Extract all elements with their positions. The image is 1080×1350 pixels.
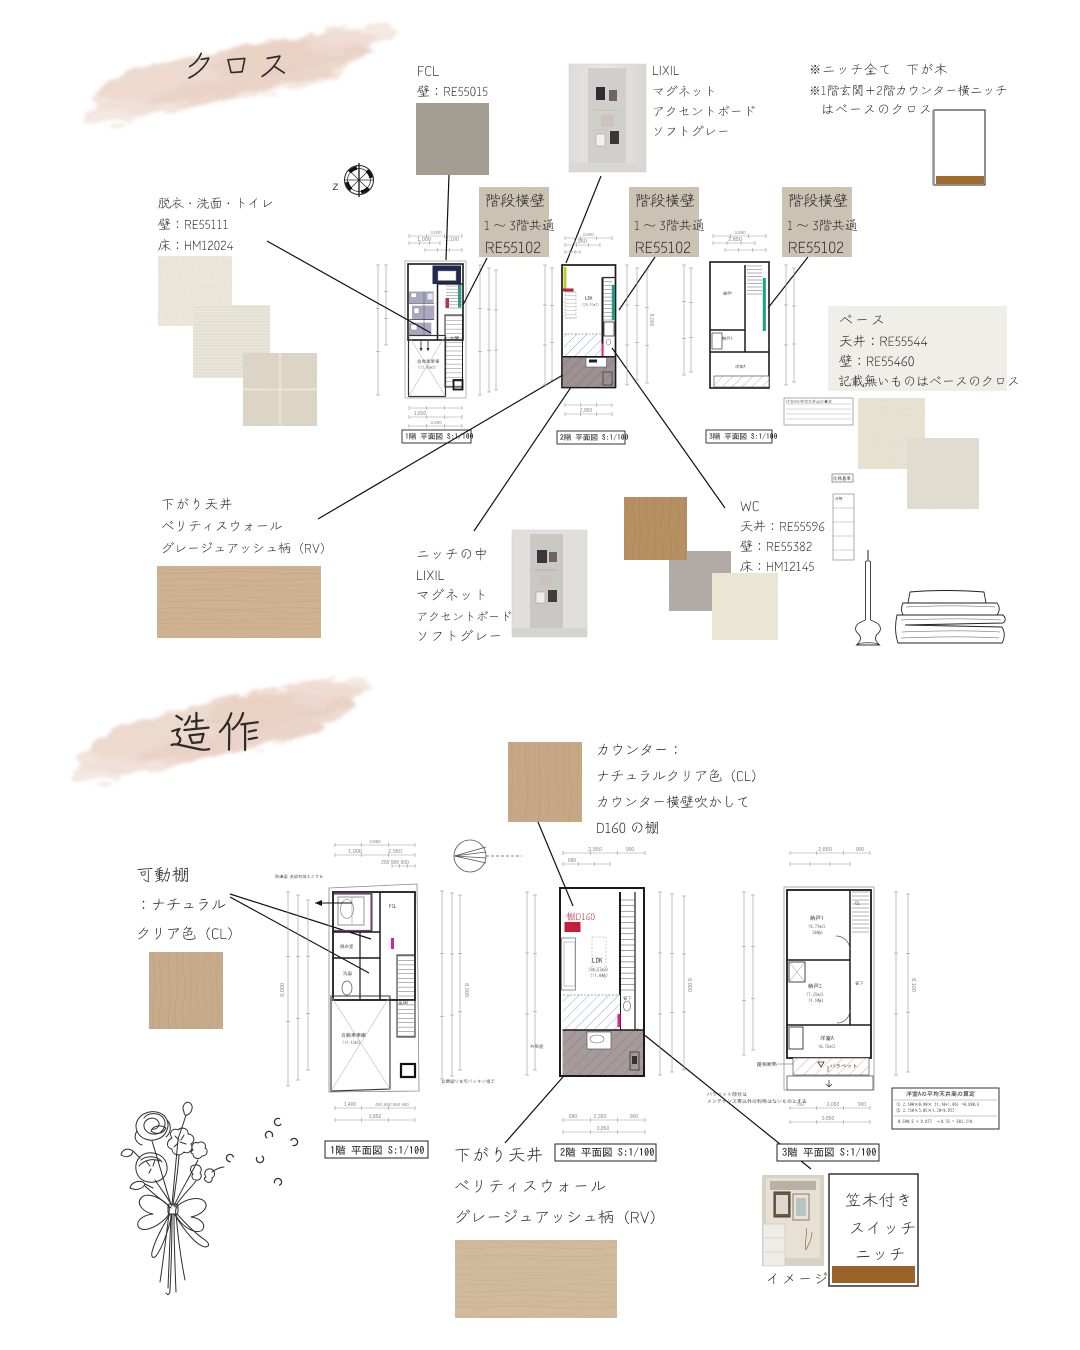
- svg-text:900: 900: [858, 1102, 867, 1108]
- svg-text:900: 900: [856, 847, 865, 853]
- svg-text:2,850: 2,850: [818, 847, 832, 853]
- svg-text:3,850: 3,850: [597, 1126, 610, 1132]
- svg-text:3,850: 3,850: [369, 839, 381, 844]
- svg-text:450 650 550 680: 450 650 550 680: [375, 1102, 409, 1107]
- svg-text:3,850: 3,850: [822, 1116, 835, 1122]
- svg-text:3,000: 3,000: [430, 230, 442, 235]
- svg-text:8,000: 8,000: [686, 978, 692, 992]
- svg-text:8,000: 8,000: [463, 983, 469, 997]
- svg-text:2,350: 2,350: [594, 1114, 607, 1120]
- svg-text:2,050: 2,050: [827, 1102, 840, 1108]
- svg-text:2,050: 2,050: [388, 849, 402, 855]
- svg-text:1,000: 1,000: [348, 849, 362, 855]
- svg-text:680: 680: [569, 1114, 578, 1120]
- svg-text:3,850: 3,850: [734, 230, 746, 235]
- svg-text:3,000: 3,000: [582, 232, 594, 237]
- svg-text:3,850: 3,850: [369, 1114, 382, 1120]
- svg-text:1,400: 1,400: [344, 1102, 357, 1108]
- svg-text:2,950: 2,950: [580, 408, 593, 414]
- svg-text:250 900 900: 250 900 900: [381, 860, 409, 866]
- svg-text:750: 750: [796, 1102, 805, 1108]
- svg-text:2,950: 2,950: [588, 847, 602, 853]
- svg-text:8,100: 8,100: [910, 978, 916, 992]
- svg-text:680: 680: [568, 858, 577, 864]
- svg-text:1,600: 1,600: [414, 411, 427, 417]
- svg-text:2,850: 2,850: [728, 237, 742, 243]
- svg-text:3,000: 3,000: [430, 420, 442, 425]
- svg-text:8,000: 8,000: [648, 314, 654, 327]
- svg-text:1,950: 1,950: [573, 239, 587, 245]
- svg-text:8,000: 8,000: [280, 983, 286, 997]
- svg-text:900: 900: [630, 1114, 639, 1120]
- svg-text:1,000: 1,000: [417, 237, 431, 243]
- svg-text:900: 900: [626, 847, 635, 853]
